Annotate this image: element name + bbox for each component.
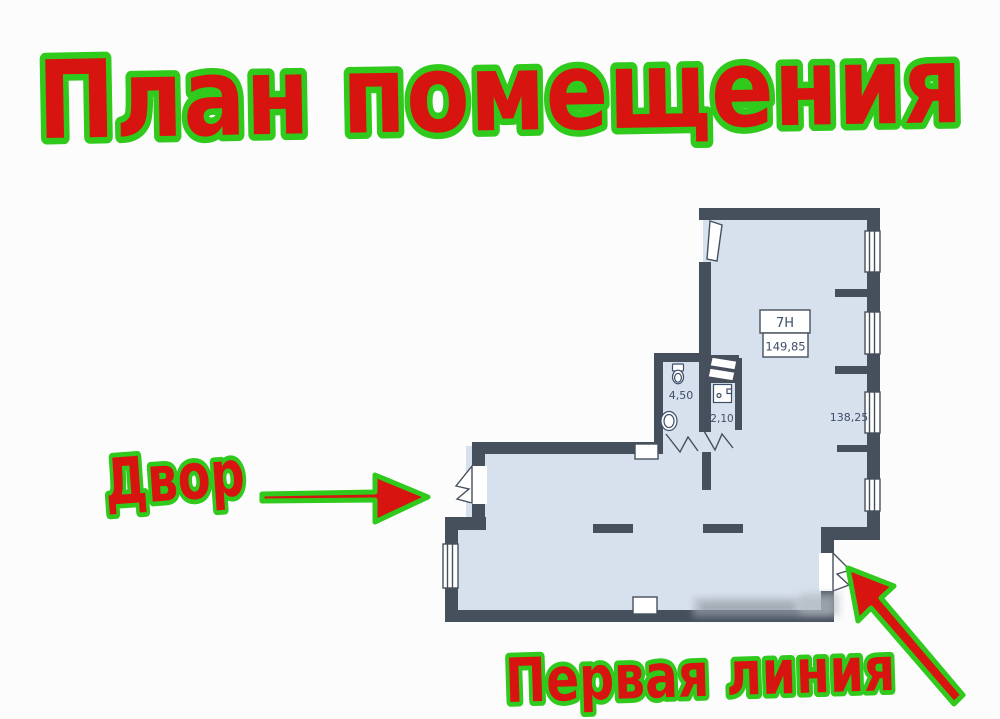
unit-label-box: 7Н 149,85 bbox=[760, 310, 810, 357]
main-room-area-label: 138,25 bbox=[830, 411, 869, 424]
yard-annotation: Двор bbox=[102, 437, 428, 522]
hall-area-label: 2,10 bbox=[710, 413, 733, 425]
hatch-opening bbox=[707, 355, 739, 383]
washbasin-icon bbox=[661, 412, 677, 431]
unit-label: 7Н bbox=[776, 316, 794, 331]
yard-label: Двор bbox=[102, 437, 247, 521]
door-leaf-icon bbox=[456, 466, 472, 503]
yard-arrow-icon bbox=[262, 475, 428, 522]
window-icon bbox=[865, 479, 880, 511]
screenshot-canvas: 7Н 149,85 4,50 2,10 138,25 План помещени… bbox=[0, 0, 1000, 719]
vent-icon bbox=[635, 444, 658, 459]
vent-icon bbox=[633, 597, 657, 614]
page-title: План помещения bbox=[36, 23, 963, 164]
sink-icon bbox=[714, 385, 732, 403]
unit-area: 149,85 bbox=[765, 340, 805, 354]
window-icon bbox=[443, 544, 458, 588]
window-icon bbox=[865, 231, 880, 272]
bathroom-area-label: 4,50 bbox=[669, 389, 694, 402]
scene: 7Н 149,85 4,50 2,10 138,25 План помещени… bbox=[0, 0, 1000, 719]
first-line-label: Первая линия bbox=[504, 634, 896, 717]
toilet-icon bbox=[673, 364, 684, 384]
window-icon bbox=[865, 312, 880, 354]
floor-plan: 7Н 149,85 4,50 2,10 138,25 bbox=[443, 208, 880, 622]
